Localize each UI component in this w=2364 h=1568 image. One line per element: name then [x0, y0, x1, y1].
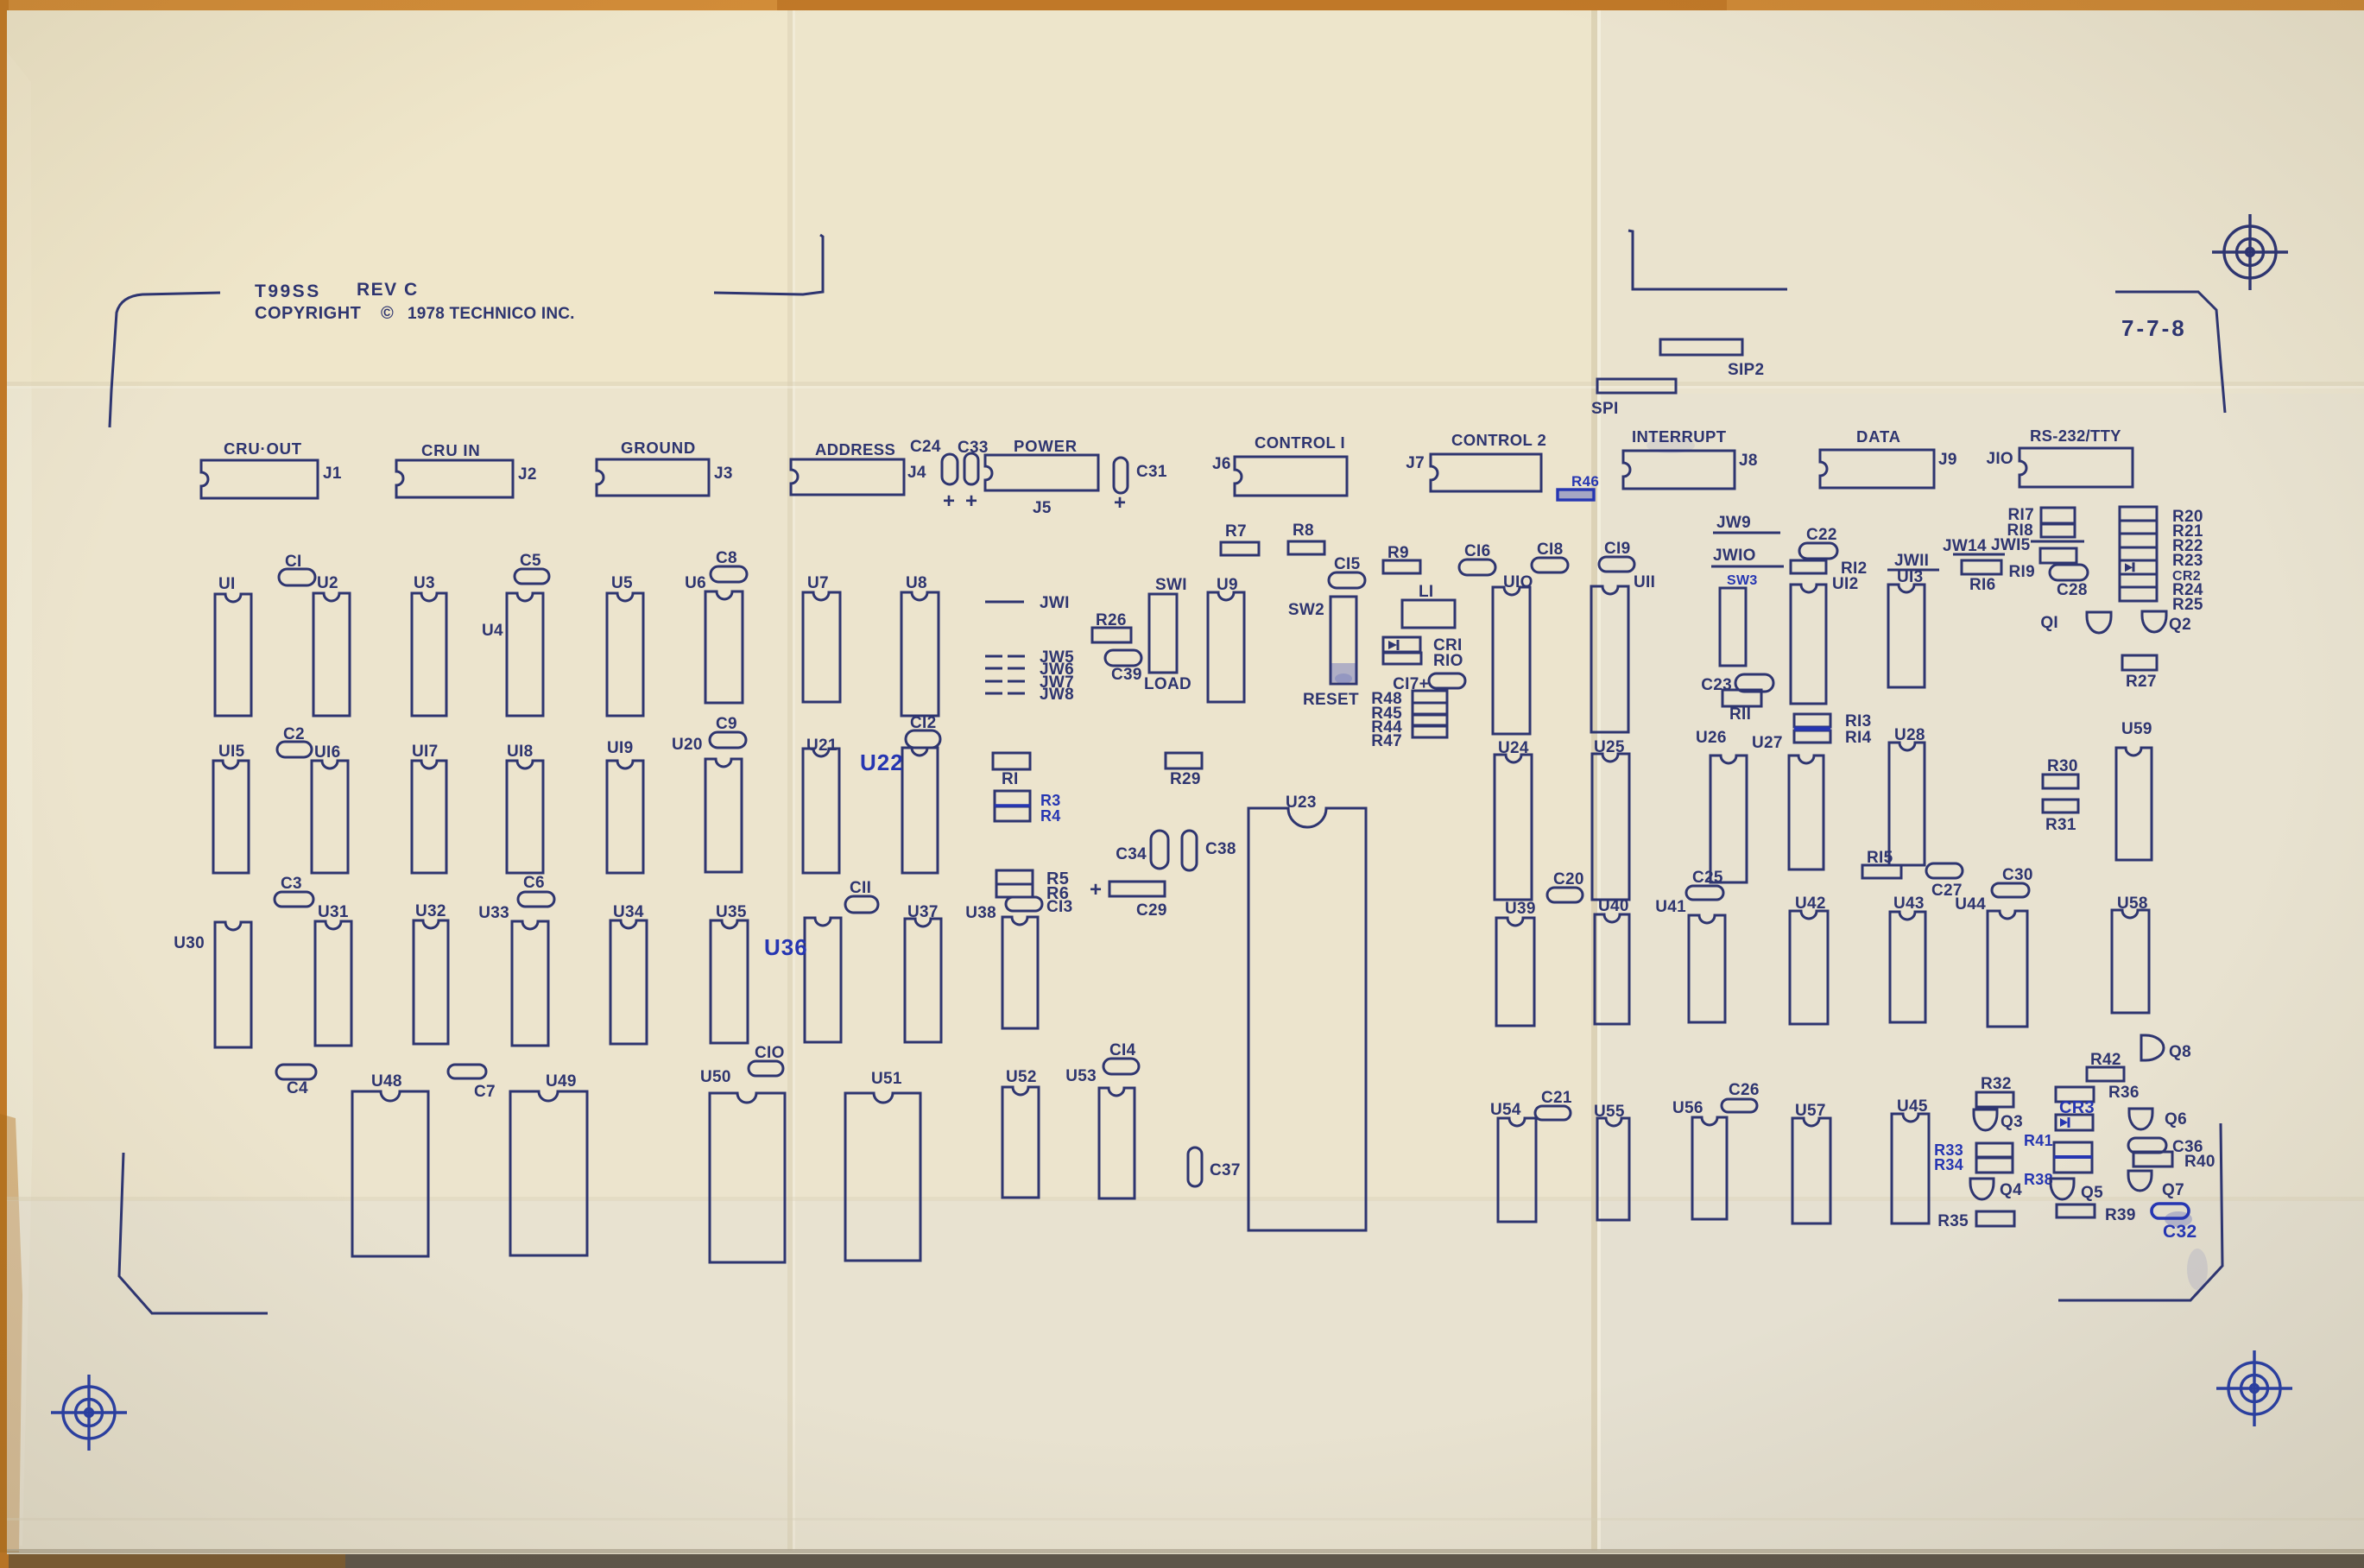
svg-text:CI4: CI4 [1109, 1041, 1136, 1059]
svg-text:U4: U4 [482, 622, 503, 640]
svg-text:LOAD: LOAD [1144, 675, 1191, 693]
svg-text:U2: U2 [317, 574, 338, 592]
svg-text:U38: U38 [965, 904, 996, 922]
svg-text:R29: R29 [1170, 770, 1201, 788]
svg-text:U20: U20 [672, 736, 703, 754]
svg-text:U34: U34 [613, 903, 644, 921]
svg-text:J3: J3 [714, 465, 733, 483]
svg-text:J2: J2 [518, 465, 537, 484]
svg-text:U25: U25 [1594, 738, 1625, 756]
svg-text:C6: C6 [523, 874, 545, 892]
svg-text:UI5: UI5 [218, 743, 245, 761]
svg-text:C2: C2 [283, 725, 305, 743]
svg-text:U9: U9 [1217, 576, 1238, 594]
svg-text:U50: U50 [700, 1068, 731, 1086]
svg-text:RI9: RI9 [2009, 563, 2035, 581]
svg-text:J7: J7 [1406, 454, 1425, 472]
svg-text:C30: C30 [2002, 866, 2033, 884]
svg-text:RI2: RI2 [1841, 560, 1867, 578]
svg-text:RI5: RI5 [1867, 849, 1893, 867]
svg-text:C23: C23 [1701, 676, 1732, 694]
svg-text:1978 TECHNICO INC.: 1978 TECHNICO INC. [408, 305, 575, 323]
svg-text:COPYRIGHT: COPYRIGHT [255, 304, 361, 323]
svg-text:CRU·OUT: CRU·OUT [224, 439, 302, 458]
svg-text:U22: U22 [860, 749, 904, 775]
svg-text:JWI: JWI [1040, 594, 1070, 612]
svg-text:U30: U30 [174, 934, 205, 952]
svg-text:R40: R40 [2184, 1153, 2215, 1171]
svg-text:CRU IN: CRU IN [421, 441, 481, 459]
svg-text:C29: C29 [1136, 901, 1167, 920]
svg-text:+: + [943, 490, 955, 513]
svg-text:+: + [1114, 491, 1126, 515]
svg-text:U28: U28 [1894, 726, 1925, 744]
svg-text:U26: U26 [1696, 729, 1727, 747]
svg-text:U43: U43 [1893, 895, 1925, 913]
svg-text:R30: R30 [2047, 757, 2078, 775]
svg-text:7-7-8: 7-7-8 [2121, 315, 2187, 341]
svg-text:LI: LI [1419, 583, 1434, 601]
svg-text:J4: J4 [907, 464, 926, 482]
svg-text:R38: R38 [2024, 1171, 2053, 1188]
svg-text:POWER: POWER [1014, 437, 1078, 455]
svg-text:J1: J1 [323, 465, 342, 483]
svg-text:©: © [381, 304, 394, 323]
svg-text:Q8: Q8 [2169, 1043, 2191, 1061]
svg-text:Q7: Q7 [2162, 1181, 2184, 1199]
svg-text:C25: C25 [1692, 869, 1723, 887]
svg-text:CI8: CI8 [1537, 541, 1563, 559]
svg-text:R3: R3 [1040, 792, 1061, 809]
svg-text:U52: U52 [1006, 1068, 1037, 1086]
svg-text:C37: C37 [1210, 1161, 1241, 1179]
svg-text:R42: R42 [2090, 1051, 2121, 1069]
svg-text:Q2: Q2 [2169, 616, 2191, 634]
svg-text:U7: U7 [807, 574, 829, 592]
svg-text:U56: U56 [1672, 1099, 1703, 1117]
svg-text:Q6: Q6 [2165, 1110, 2187, 1129]
svg-text:UI8: UI8 [507, 743, 533, 761]
svg-text:RI3: RI3 [1845, 712, 1871, 730]
svg-text:JWI5: JWI5 [1991, 536, 2031, 554]
svg-text:R23: R23 [2172, 552, 2203, 570]
svg-text:RESET: RESET [1303, 691, 1359, 709]
svg-text:U53: U53 [1065, 1067, 1097, 1085]
svg-text:R46: R46 [1571, 473, 1599, 490]
svg-text:C34: C34 [1116, 845, 1147, 863]
svg-text:R27: R27 [2126, 673, 2157, 691]
svg-text:R26: R26 [1096, 611, 1127, 629]
svg-text:SW3: SW3 [1727, 573, 1758, 588]
svg-text:JW14: JW14 [1943, 537, 1987, 555]
svg-text:C5: C5 [520, 552, 541, 570]
svg-text:DATA: DATA [1856, 427, 1901, 446]
svg-text:J9: J9 [1938, 451, 1957, 469]
svg-text:RII: RII [1729, 705, 1751, 724]
svg-text:JW8: JW8 [1040, 686, 1074, 704]
svg-text:U37: U37 [907, 903, 939, 921]
svg-text:U41: U41 [1655, 898, 1686, 916]
svg-text:U59: U59 [2121, 720, 2152, 738]
svg-text:C39: C39 [1111, 666, 1142, 684]
svg-text:CI5: CI5 [1334, 555, 1361, 573]
svg-text:SW2: SW2 [1288, 601, 1324, 619]
svg-text:U21: U21 [806, 737, 838, 755]
svg-text:CONTROL 2: CONTROL 2 [1451, 431, 1546, 449]
svg-text:R6: R6 [1046, 884, 1069, 903]
svg-text:J8: J8 [1739, 452, 1758, 470]
svg-text:U31: U31 [318, 903, 349, 921]
svg-text:JW9: JW9 [1716, 514, 1751, 532]
svg-text:U5: U5 [611, 574, 633, 592]
svg-text:U3: U3 [414, 574, 435, 592]
svg-text:U8: U8 [906, 574, 927, 592]
svg-text:U57: U57 [1795, 1102, 1826, 1120]
svg-text:+: + [1090, 878, 1102, 901]
svg-text:U27: U27 [1752, 734, 1783, 752]
svg-text:U23: U23 [1286, 793, 1317, 812]
svg-text:R47: R47 [1371, 732, 1402, 750]
svg-text:C31: C31 [1136, 463, 1167, 481]
svg-text:C4: C4 [287, 1079, 308, 1097]
svg-text:C20: C20 [1553, 870, 1584, 888]
svg-text:U40: U40 [1598, 897, 1629, 915]
svg-text:UI6: UI6 [314, 743, 340, 762]
svg-text:C33: C33 [958, 439, 989, 457]
svg-text:RIO: RIO [1433, 652, 1463, 670]
svg-text:C24: C24 [910, 438, 941, 456]
svg-text:UIO: UIO [1503, 573, 1533, 591]
svg-text:Q4: Q4 [2000, 1181, 2022, 1199]
svg-text:R8: R8 [1293, 522, 1314, 540]
svg-text:R34: R34 [1934, 1156, 1963, 1173]
svg-text:UI7: UI7 [412, 743, 438, 761]
svg-text:R7: R7 [1225, 522, 1247, 541]
svg-text:RI6: RI6 [1969, 576, 1995, 594]
svg-text:CONTROL I: CONTROL I [1255, 433, 1345, 452]
svg-text:UII: UII [1634, 573, 1655, 591]
svg-text:JWII: JWII [1894, 552, 1929, 570]
svg-text:U24: U24 [1498, 739, 1529, 757]
svg-text:U58: U58 [2117, 895, 2148, 913]
svg-text:C8: C8 [716, 549, 737, 567]
svg-text:U49: U49 [546, 1072, 577, 1091]
svg-text:QI: QI [2040, 614, 2058, 632]
svg-text:JIO: JIO [1986, 450, 2013, 468]
svg-text:JWIO: JWIO [1713, 547, 1756, 565]
svg-text:R25: R25 [2172, 596, 2203, 614]
svg-text:SPI: SPI [1591, 400, 1619, 418]
svg-text:GROUND: GROUND [621, 439, 696, 457]
svg-text:J6: J6 [1212, 455, 1231, 473]
svg-text:Q5: Q5 [2081, 1184, 2103, 1202]
svg-text:C38: C38 [1205, 840, 1236, 858]
svg-text:Q3: Q3 [2001, 1113, 2023, 1131]
svg-text:U42: U42 [1795, 895, 1826, 913]
svg-text:CI6: CI6 [1464, 542, 1490, 560]
svg-text:C28: C28 [2057, 581, 2088, 599]
svg-text:U48: U48 [371, 1072, 402, 1091]
svg-text:U39: U39 [1505, 900, 1536, 918]
svg-text:RI4: RI4 [1845, 729, 1872, 747]
svg-text:U36: U36 [764, 934, 808, 960]
svg-text:C21: C21 [1541, 1089, 1572, 1107]
svg-text:U33: U33 [478, 904, 509, 922]
svg-text:U51: U51 [871, 1070, 902, 1088]
svg-text:CIO: CIO [755, 1044, 785, 1062]
svg-text:R36: R36 [2108, 1084, 2140, 1102]
svg-text:U54: U54 [1490, 1101, 1521, 1119]
svg-text:R41: R41 [2024, 1132, 2053, 1149]
svg-text:R35: R35 [1937, 1212, 1969, 1230]
svg-text:UI9: UI9 [607, 739, 633, 757]
svg-text:C27: C27 [1931, 882, 1963, 900]
svg-text:RS-232/TTY: RS-232/TTY [2030, 427, 2121, 445]
svg-text:R9: R9 [1387, 544, 1409, 562]
svg-text:+: + [965, 490, 977, 513]
svg-text:C3: C3 [281, 875, 302, 893]
svg-text:U35: U35 [716, 903, 747, 921]
svg-text:U55: U55 [1594, 1103, 1625, 1121]
svg-text:CR3: CR3 [2059, 1098, 2095, 1117]
svg-text:T99SS: T99SS [255, 281, 321, 301]
svg-text:UI: UI [218, 575, 236, 593]
svg-text:C26: C26 [1729, 1081, 1760, 1099]
svg-text:REV C: REV C [357, 280, 419, 300]
svg-text:U32: U32 [415, 902, 446, 920]
svg-text:J5: J5 [1033, 499, 1052, 517]
svg-text:CI2: CI2 [910, 714, 936, 732]
svg-text:C9: C9 [716, 715, 737, 733]
svg-text:R32: R32 [1981, 1075, 2012, 1093]
svg-text:UI2: UI2 [1832, 575, 1858, 593]
svg-text:RI: RI [1002, 770, 1019, 788]
svg-text:ADDRESS: ADDRESS [815, 440, 895, 458]
svg-text:CII: CII [850, 879, 871, 897]
svg-text:U45: U45 [1897, 1097, 1928, 1116]
svg-text:CI9: CI9 [1604, 540, 1630, 558]
svg-text:U6: U6 [685, 574, 706, 592]
svg-text:CI: CI [285, 553, 302, 571]
svg-text:SIP2: SIP2 [1728, 361, 1764, 379]
svg-text:C7: C7 [474, 1083, 496, 1101]
svg-text:R39: R39 [2105, 1206, 2136, 1224]
svg-text:R4: R4 [1040, 807, 1061, 825]
svg-text:SWI: SWI [1155, 576, 1187, 594]
svg-text:R31: R31 [2045, 816, 2076, 834]
svg-text:C22: C22 [1806, 526, 1837, 544]
